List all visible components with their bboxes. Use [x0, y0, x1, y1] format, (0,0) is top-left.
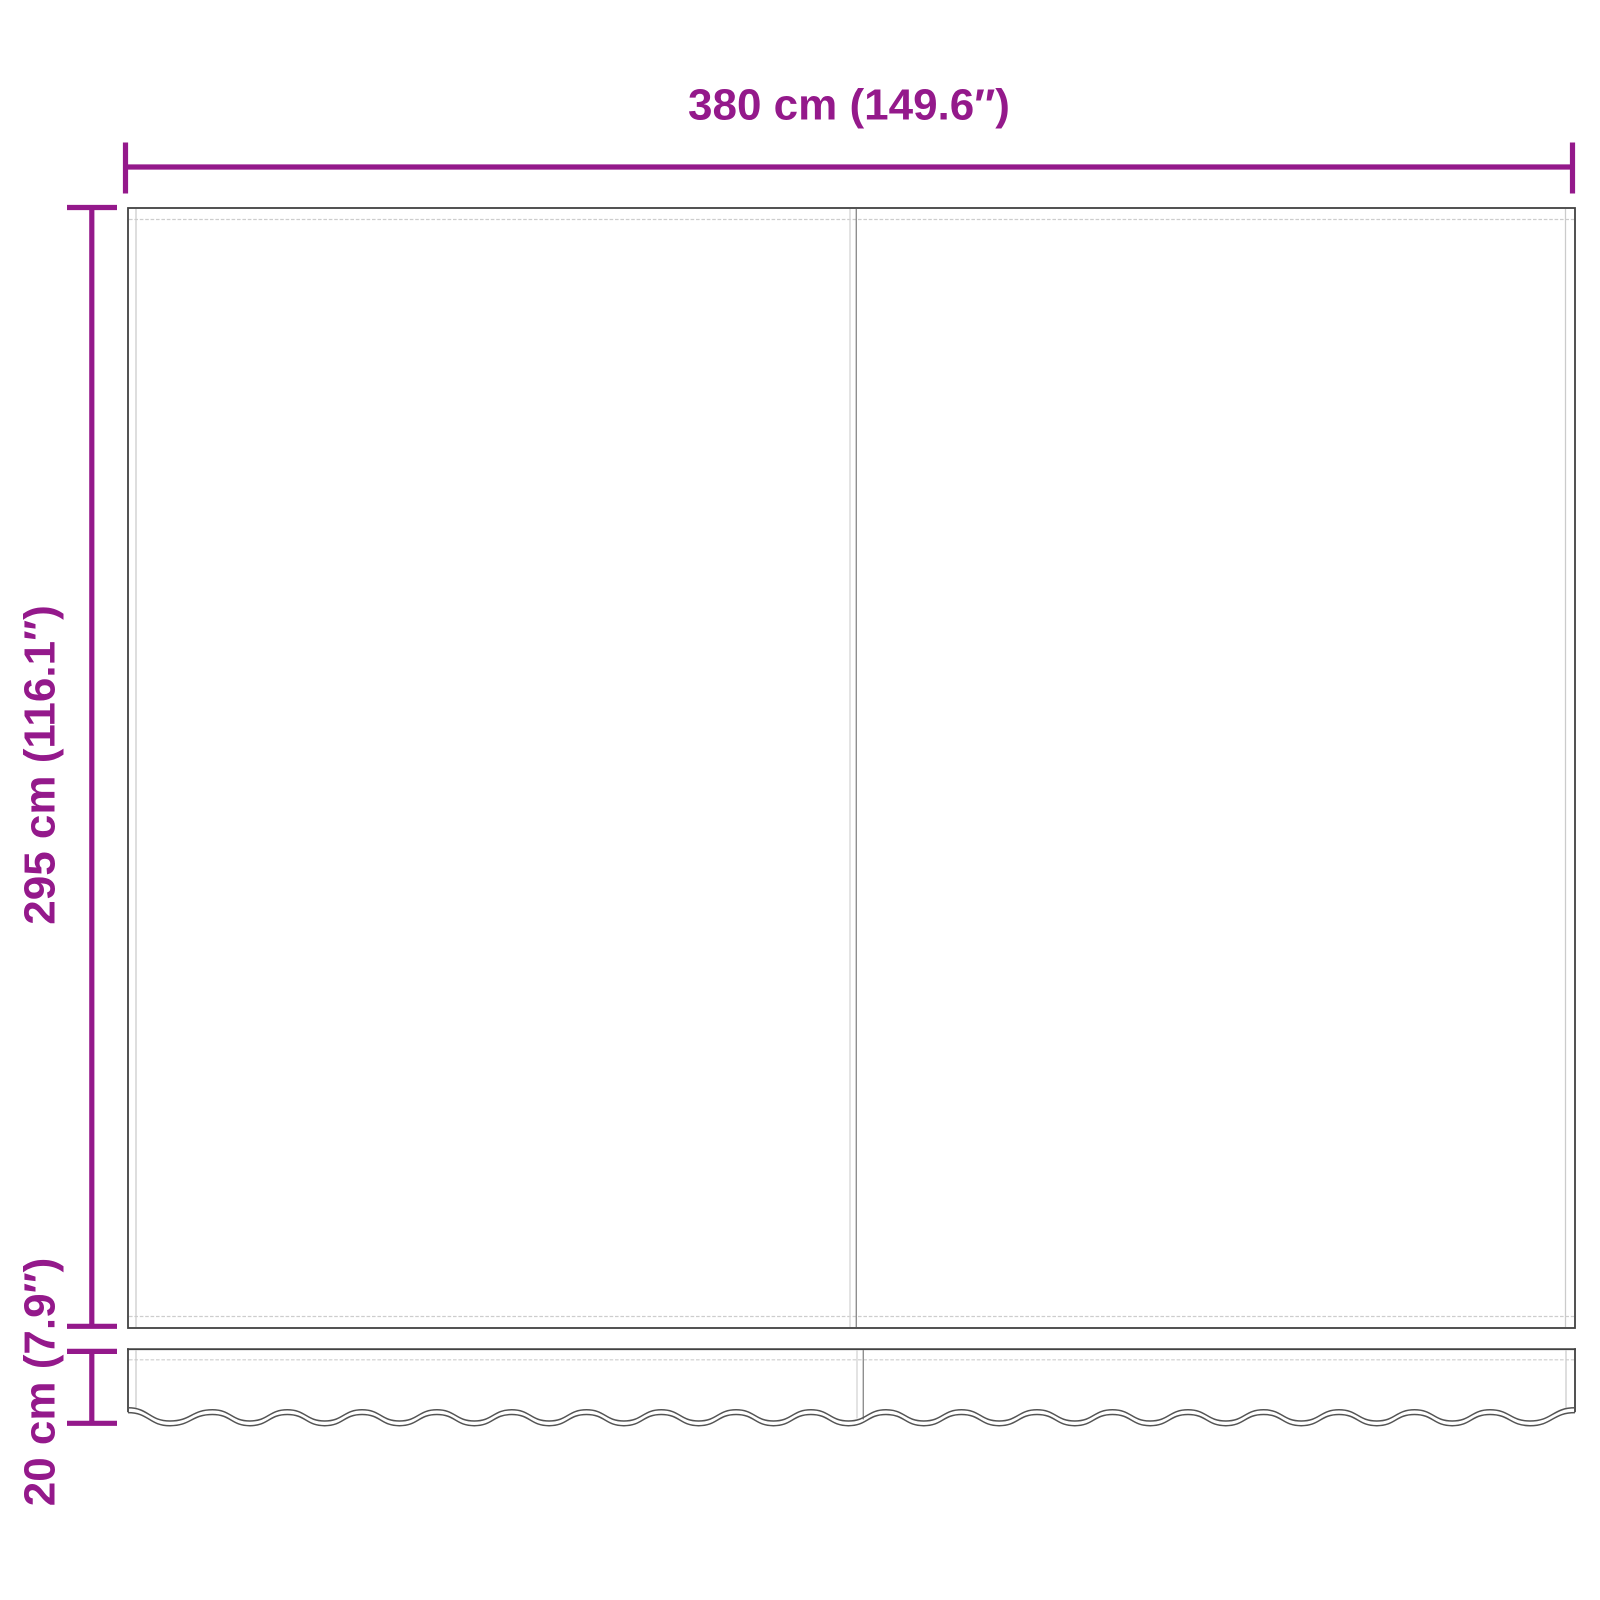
svg-text:20 cm (7.9″): 20 cm (7.9″) — [16, 1258, 65, 1507]
svg-text:380 cm (149.6″): 380 cm (149.6″) — [688, 81, 1010, 130]
svg-text:295 cm (116.1″): 295 cm (116.1″) — [16, 605, 65, 925]
